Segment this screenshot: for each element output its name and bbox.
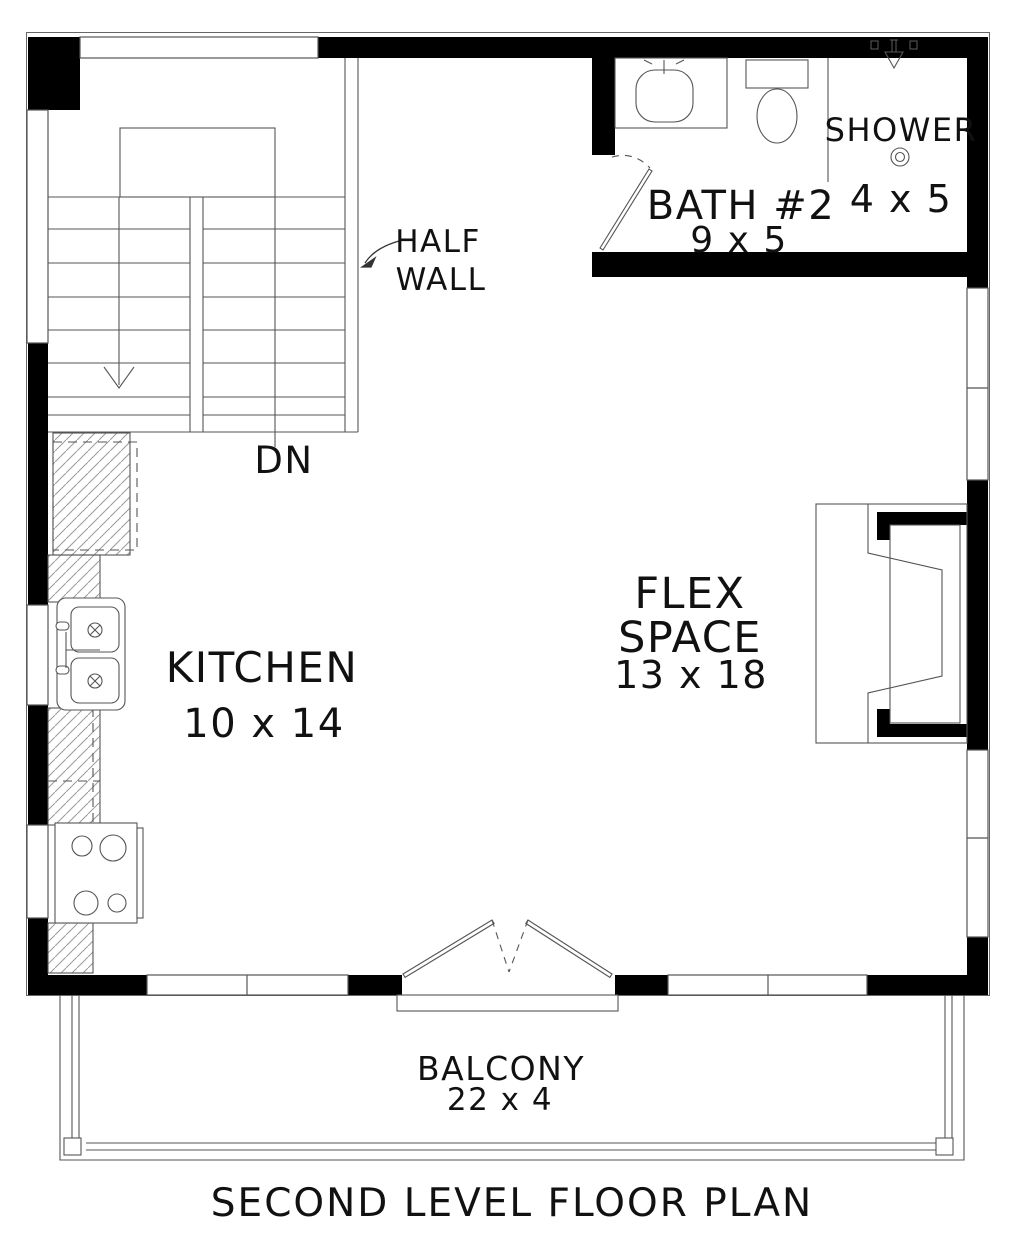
counter-hatch-1 bbox=[48, 555, 100, 602]
floor-plan-svg: HALF WALL DN BATH #2 9 x 5 SHOWER 4 x 5 … bbox=[0, 0, 1024, 1258]
wall-bay-top bbox=[877, 512, 967, 525]
label-shower-size: 4 x 5 bbox=[850, 177, 953, 221]
wall-bottom-2 bbox=[348, 975, 402, 995]
kitchen-fixtures bbox=[48, 433, 143, 973]
wall-bay-top-stub bbox=[877, 512, 890, 540]
wall-bottom-1 bbox=[28, 975, 147, 995]
wall-left-2 bbox=[28, 705, 48, 825]
label-flex-1: FLEX bbox=[634, 569, 745, 619]
bathroom-vanity-sink bbox=[615, 58, 727, 128]
balcony-post-left bbox=[64, 1138, 81, 1155]
walls bbox=[28, 37, 988, 995]
label-bath2-size: 9 x 5 bbox=[690, 220, 788, 261]
window-right-1 bbox=[967, 288, 988, 480]
wall-top bbox=[318, 37, 988, 58]
half-wall-leader bbox=[362, 241, 399, 267]
wall-bath-south bbox=[592, 252, 988, 277]
kitchen-double-sink bbox=[56, 598, 125, 710]
wall-right-1 bbox=[967, 37, 988, 288]
range-cooktop bbox=[55, 823, 143, 923]
labels: HALF WALL DN BATH #2 9 x 5 SHOWER 4 x 5 … bbox=[166, 111, 978, 1226]
stair-landing bbox=[120, 128, 275, 197]
counter-hatch-3 bbox=[48, 923, 93, 973]
label-half-wall-2: WALL bbox=[396, 262, 487, 298]
wall-bottom-3 bbox=[615, 975, 668, 995]
door-swing-right bbox=[509, 920, 528, 972]
window-left-1 bbox=[27, 110, 48, 343]
page-title: SECOND LEVEL FLOOR PLAN bbox=[211, 1181, 813, 1226]
toilet bbox=[746, 60, 808, 143]
window-left-2 bbox=[27, 605, 48, 705]
wall-bottom-4 bbox=[867, 975, 988, 995]
floor-drain-icon bbox=[891, 148, 909, 166]
french-doors bbox=[397, 920, 618, 1011]
label-dn: DN bbox=[254, 439, 313, 482]
stair-treads-right bbox=[203, 229, 345, 415]
label-half-wall-1: HALF bbox=[395, 224, 481, 260]
stair-down-arrow bbox=[104, 197, 134, 388]
floor-plan-canvas: HALF WALL DN BATH #2 9 x 5 SHOWER 4 x 5 … bbox=[0, 0, 1024, 1258]
label-kitchen-size: 10 x 14 bbox=[183, 701, 344, 747]
label-shower-name: SHOWER bbox=[825, 111, 978, 149]
balcony-post-right bbox=[936, 1138, 953, 1155]
label-flex-size: 13 x 18 bbox=[614, 653, 768, 697]
window-left-3 bbox=[27, 825, 48, 918]
bath-door bbox=[600, 155, 652, 250]
window-right-2 bbox=[967, 750, 988, 937]
wall-top-left-corner bbox=[28, 37, 80, 110]
door-leaf-left bbox=[403, 920, 494, 977]
stairs-down bbox=[48, 58, 358, 447]
door-swing-left bbox=[492, 920, 509, 972]
door-leaf-right bbox=[526, 920, 612, 977]
label-balcony-size: 22 x 4 bbox=[447, 1082, 553, 1118]
windows bbox=[27, 37, 988, 995]
wall-bath-west bbox=[592, 58, 615, 155]
window-top bbox=[80, 37, 318, 58]
wall-right-2 bbox=[967, 480, 988, 750]
bay-window-seat bbox=[816, 504, 967, 743]
refrigerator bbox=[53, 433, 130, 555]
wall-bay-bottom bbox=[877, 724, 967, 737]
door-threshold bbox=[397, 995, 618, 1011]
wall-left-1 bbox=[28, 343, 48, 605]
exterior-outline bbox=[27, 33, 990, 996]
counter-hatch-2 bbox=[48, 708, 100, 825]
label-kitchen-name: KITCHEN bbox=[166, 643, 359, 692]
wall-bay-bottom-stub bbox=[877, 709, 890, 737]
